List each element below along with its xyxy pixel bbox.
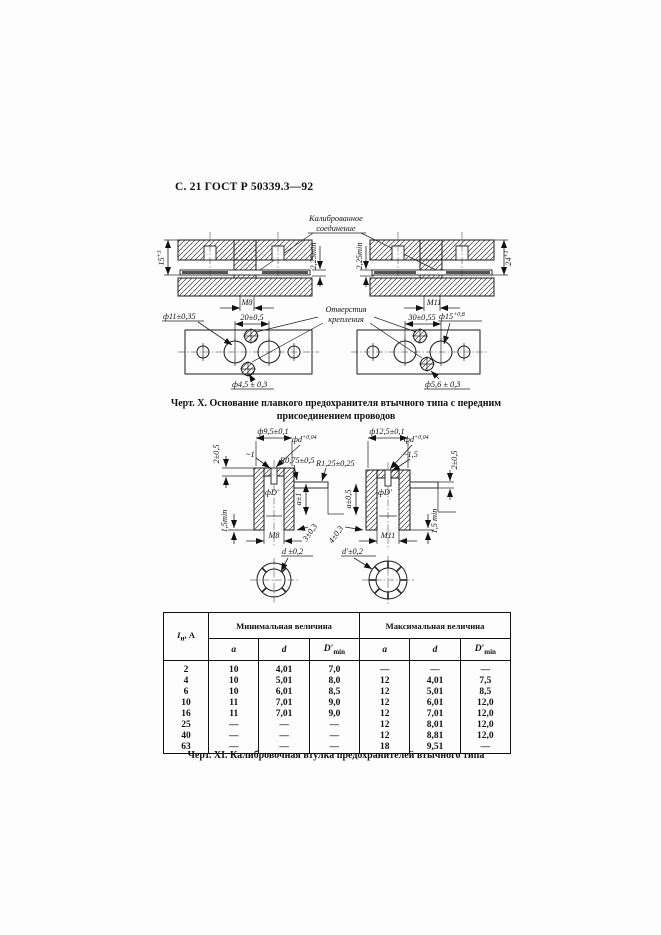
dim-right-a: a±0,5 bbox=[344, 484, 356, 515]
dim-height-15: 15+3 bbox=[157, 240, 180, 275]
cell: 8,5 bbox=[309, 687, 359, 698]
col-group-max: Максимальная величина bbox=[360, 613, 511, 639]
dim-label: 24+1 bbox=[504, 250, 513, 265]
cell: 12 bbox=[360, 676, 410, 687]
col-group-min: Минимальная величина bbox=[209, 613, 360, 639]
cell: 12 bbox=[360, 698, 410, 709]
cell: 12,0 bbox=[460, 720, 510, 731]
callout-label: соединение bbox=[316, 224, 356, 233]
cell: 12 bbox=[360, 709, 410, 720]
dim-label: фd+0,04 bbox=[292, 434, 317, 444]
cell: 7,0 bbox=[309, 661, 359, 677]
label-dia-11: ф11±0,35 bbox=[162, 312, 232, 345]
cell: 7,01 bbox=[259, 698, 309, 709]
cell: 12 bbox=[360, 687, 410, 698]
callout-label: Отверстия bbox=[325, 305, 366, 314]
dim-label: 2±0,5 bbox=[450, 450, 459, 469]
left-plate-view bbox=[178, 328, 319, 377]
left-section-view bbox=[178, 232, 312, 296]
left-bushing-bottom-view: d ±0,2 bbox=[250, 547, 313, 604]
cell: 2 bbox=[164, 661, 209, 677]
dim-right-slot: ~1,5 bbox=[392, 450, 418, 471]
callout-label: Калиброванное bbox=[308, 214, 363, 223]
thread-label: М8 bbox=[240, 298, 253, 307]
dim-label: 2,25min bbox=[355, 243, 364, 270]
dim-label: ф9,5±0,1 bbox=[257, 427, 288, 436]
dim-label: 1,5 min bbox=[430, 509, 439, 534]
dim-label: фd+0,04 bbox=[404, 434, 429, 444]
dim-label: a±1 bbox=[294, 493, 303, 506]
caption-line: Черт. X. Основание плавкого предохраните… bbox=[145, 397, 527, 410]
cell: 4,01 bbox=[410, 676, 460, 687]
thread-label: М8 bbox=[267, 531, 280, 540]
caption-line: Черт. XI. Калибровочная втулка предохран… bbox=[145, 749, 527, 762]
cell: 6 bbox=[164, 687, 209, 698]
table-row: 2104,017,0——— bbox=[164, 661, 511, 677]
cell: 8,01 bbox=[410, 720, 460, 731]
cell: 11 bbox=[209, 709, 259, 720]
table-row: 4105,018,0124,017,5 bbox=[164, 676, 511, 687]
dim-left-slot: ~1 bbox=[246, 450, 270, 468]
table-row: 40———128,8112,0 bbox=[164, 731, 511, 742]
cell: 12 bbox=[360, 731, 410, 742]
thread-label: М11 bbox=[380, 531, 396, 540]
dim-thread-m8: М8 bbox=[220, 296, 274, 311]
calibration-table: Iн, А Минимальная величина Максимальная … bbox=[163, 612, 511, 754]
cell: 10 bbox=[209, 676, 259, 687]
right-bushing-section: фD′ bbox=[366, 462, 456, 548]
cell: 8,81 bbox=[410, 731, 460, 742]
col-header-dmin-min: D′min bbox=[309, 639, 359, 661]
dim-label: 4±0,3 bbox=[327, 524, 345, 545]
cell: 9,0 bbox=[309, 698, 359, 709]
document-page: С. 21 ГОСТ Р 50339.3—92 Калиброванное со… bbox=[0, 0, 661, 935]
dim-right-lip: 2±0,5 bbox=[438, 450, 459, 500]
dim-left-a: a±1 bbox=[294, 484, 306, 515]
mounting-holes-callout: Отверстия крепления bbox=[252, 305, 422, 362]
cell: — bbox=[309, 731, 359, 742]
table-row: 16117,019,0127,0112,0 bbox=[164, 709, 511, 720]
dim-left-3: 3±0,3 bbox=[297, 522, 319, 544]
cell: 5,01 bbox=[410, 687, 460, 698]
right-bushing-bottom-view: d′±0,2 bbox=[341, 547, 414, 606]
cell: 12,0 bbox=[460, 709, 510, 720]
cell: 8,5 bbox=[460, 687, 510, 698]
cell: 9,0 bbox=[309, 709, 359, 720]
dim-label: a±0,5 bbox=[344, 489, 353, 508]
right-section-view bbox=[370, 232, 494, 296]
cell: 6,01 bbox=[259, 687, 309, 698]
col-header-a-max: a bbox=[360, 639, 410, 661]
cell: 25 bbox=[164, 720, 209, 731]
cell: 10 bbox=[164, 698, 209, 709]
table-group-header-row: Iн, А Минимальная величина Максимальная … bbox=[164, 613, 511, 639]
dim-label: ф4,5 ± 0,3 bbox=[232, 380, 267, 389]
figure-x-drawing: Калиброванное соединение 15+3 2,25min bbox=[158, 212, 518, 398]
dim-right-4: 4±0,3 bbox=[327, 524, 363, 545]
label-r125: R1,25±0,25 bbox=[315, 459, 355, 481]
label-dia-45: ф4,5 ± 0,3 bbox=[231, 374, 274, 389]
caption-line: присоединением проводов bbox=[145, 410, 527, 423]
cell: — bbox=[259, 720, 309, 731]
dim-label: 2±0,5 bbox=[212, 444, 221, 463]
dim-label: 20±0,5 bbox=[240, 313, 263, 322]
figure-xi-caption: Черт. XI. Калибровочная втулка предохран… bbox=[145, 749, 527, 762]
dim-label: ф11±0,35 bbox=[163, 312, 196, 321]
dim-label: d ±0,2 bbox=[282, 547, 303, 556]
dim-label: d′±0,2 bbox=[342, 547, 363, 556]
dim-height-24: 24+1 bbox=[492, 240, 513, 275]
cell: 6,01 bbox=[410, 698, 460, 709]
cell: 7,5 bbox=[460, 676, 510, 687]
page-header: С. 21 ГОСТ Р 50339.3—92 bbox=[175, 181, 313, 193]
figure-x-caption: Черт. X. Основание плавкого предохраните… bbox=[145, 397, 527, 423]
dim-left-15min: 1,5min bbox=[220, 510, 254, 544]
figure-xi-drawing: фD′ ф9,5±0,1 2±0,5 фd+0,04 ~1 R0,75±0,5 bbox=[210, 424, 478, 620]
cell: — bbox=[209, 720, 259, 731]
cell: 5,01 bbox=[259, 676, 309, 687]
label-dia-15: ф15+0,8 bbox=[438, 312, 482, 344]
cell: 12,0 bbox=[460, 731, 510, 742]
dim-label: 3±0,3 bbox=[300, 522, 319, 544]
cell: 16 bbox=[164, 709, 209, 720]
dim-label: 2,25min bbox=[309, 243, 318, 270]
col-header-dmin-max: D′min bbox=[460, 639, 510, 661]
right-plate-view bbox=[351, 328, 487, 374]
col-header-current: Iн, А bbox=[164, 613, 209, 661]
dim-label: 15+3 bbox=[157, 250, 166, 265]
table-row: 25———128,0112,0 bbox=[164, 720, 511, 731]
col-header-a-min: a bbox=[209, 639, 259, 661]
cell: 40 bbox=[164, 731, 209, 742]
cell: 11 bbox=[209, 698, 259, 709]
cell: 12 bbox=[360, 720, 410, 731]
col-header-d-min: d bbox=[259, 639, 309, 661]
dim-label: 30±0,55 bbox=[407, 313, 435, 322]
dim-label: фD′ bbox=[378, 488, 392, 497]
cell: — bbox=[259, 731, 309, 742]
cell: — bbox=[309, 720, 359, 731]
cell: 7,01 bbox=[410, 709, 460, 720]
dim-thread-m11: М11 bbox=[404, 296, 460, 311]
dim-label: ф5,6 ± 0,3 bbox=[425, 380, 460, 389]
table-row: 6106,018,5125,018,5 bbox=[164, 687, 511, 698]
thread-label: М11 bbox=[426, 298, 442, 307]
dim-label: ~1,5 bbox=[403, 450, 418, 459]
dim-label: 1,5min bbox=[220, 510, 229, 533]
dim-label: ф12,5±0,1 bbox=[369, 427, 404, 436]
dim-label: ф15+0,8 bbox=[439, 312, 465, 321]
cell: 8,0 bbox=[309, 676, 359, 687]
dim-right-d125: ф12,5±0,1 bbox=[368, 427, 408, 468]
cell: — bbox=[410, 661, 460, 677]
cell: — bbox=[360, 661, 410, 677]
table-sub-header-row: a d D′min a d D′min bbox=[164, 639, 511, 661]
dim-label: R0,75±0,5 bbox=[279, 456, 315, 465]
dim-label: R1,25±0,25 bbox=[315, 459, 355, 468]
cell: — bbox=[209, 731, 259, 742]
dim-label: ~1 bbox=[246, 450, 255, 459]
cell: 7,01 bbox=[259, 709, 309, 720]
cell: 12,0 bbox=[460, 698, 510, 709]
table-row: 10117,019,0126,0112,0 bbox=[164, 698, 511, 709]
col-header-d-max: d bbox=[410, 639, 460, 661]
cell: 10 bbox=[209, 661, 259, 677]
cell: 4 bbox=[164, 676, 209, 687]
cell: 10 bbox=[209, 687, 259, 698]
dim-right-15min: 1,5 min bbox=[410, 509, 439, 544]
callout-label: крепления bbox=[328, 315, 364, 324]
cell: — bbox=[460, 661, 510, 677]
dim-label: фD′ bbox=[265, 488, 279, 497]
cell: 4,01 bbox=[259, 661, 309, 677]
